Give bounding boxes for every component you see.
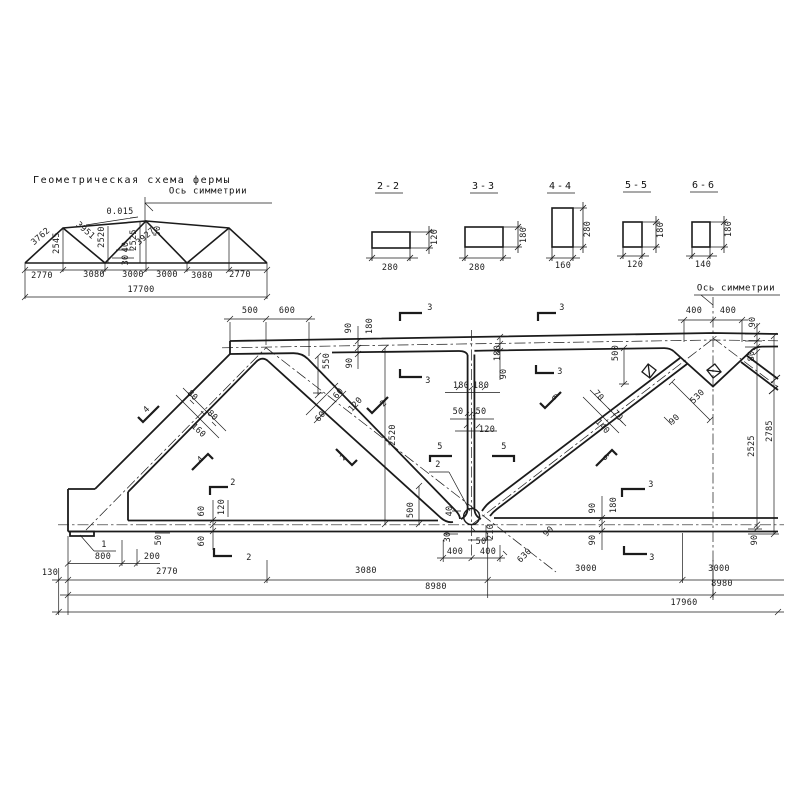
schema-panel-1: 2770	[31, 272, 53, 281]
dim-90-brc2: 90	[589, 535, 598, 546]
sec66-h: 180	[725, 221, 734, 237]
cut-5-b: 5	[501, 443, 506, 452]
drawing-sheet: Геометрическая схема фермы Ось симметрии…	[0, 0, 800, 800]
dim-60-bl2: 60	[198, 536, 207, 547]
dim-90-brc1: 90	[589, 503, 598, 514]
schema-title: Геометрическая схема фермы	[33, 176, 231, 186]
cut-3-t2: 3	[559, 304, 564, 313]
cut-2-b: 2	[246, 554, 251, 563]
dim-30-bc: 30	[444, 532, 453, 543]
sec66-w: 140	[695, 261, 711, 270]
schema-panel-2: 3080	[83, 271, 105, 280]
dim-120-v: 120	[479, 426, 495, 435]
dim-8980-l: 8980	[425, 583, 447, 592]
sec33-w: 280	[469, 264, 485, 273]
dim-400-l: 400	[686, 307, 702, 316]
dim-400-b2: 400	[480, 548, 496, 557]
schema-post-2: 2520	[98, 226, 107, 248]
dim-90-mid: 90	[500, 369, 509, 380]
dim-90-br: 90	[751, 535, 760, 546]
dim-130: 130	[42, 569, 58, 578]
schema-post-3: 2525	[130, 229, 139, 251]
sec55-h: 180	[657, 222, 666, 238]
dim-200: 200	[144, 553, 160, 562]
dim-400-b1: 400	[447, 548, 463, 557]
dim-180-v1: 180	[453, 382, 469, 391]
schema-panel-5: 3080	[191, 272, 213, 281]
dim-17960: 17960	[670, 599, 697, 608]
dim-3000-b2: 3000	[708, 565, 730, 574]
truss-outline	[68, 333, 778, 536]
dim-3000-b1: 3000	[575, 565, 597, 574]
detail-1: 1	[101, 541, 106, 550]
section-dims	[366, 192, 728, 261]
cut-3-t3: 3	[648, 481, 653, 490]
sec22-w: 280	[382, 264, 398, 273]
schema-offset-50: 50	[154, 226, 163, 237]
schema-post-1: 2545	[53, 232, 62, 254]
dim-90-j1b: 90	[346, 358, 355, 369]
schema-offset-30: 30	[122, 255, 131, 266]
sec44-h: 280	[584, 221, 593, 237]
section-title-4-4: 4-4	[549, 182, 573, 192]
schema-panel-3: 3000	[122, 271, 144, 280]
dim-180-mid: 180	[494, 345, 503, 361]
dim-120-bl: 120	[218, 499, 227, 515]
dim-40-bc: 40	[446, 506, 455, 517]
dim-3080-b: 3080	[355, 567, 377, 576]
sec44-w: 160	[555, 262, 571, 271]
cut-3-b1: 3	[425, 377, 430, 386]
gusset-pads	[642, 364, 721, 378]
cut-3-t1: 3	[427, 304, 432, 313]
section-title-3-3: 3-3	[472, 182, 496, 192]
dim-2785: 2785	[766, 420, 775, 442]
dim-2520: 2520	[389, 424, 398, 446]
schema-total: 17700	[127, 286, 154, 295]
dim-2770-b: 2770	[156, 568, 178, 577]
cut-5-a: 5	[437, 443, 442, 452]
main-axis-of-symmetry-label: Ось симметрии	[697, 285, 775, 294]
dim-90-tr: 90	[749, 317, 758, 328]
sec33-h: 180	[520, 227, 529, 243]
cut-3-b3: 3	[649, 554, 654, 563]
dim-550: 550	[323, 353, 332, 369]
dim-8980-r: 8980	[711, 580, 733, 589]
dim-180-brc: 180	[610, 497, 619, 513]
dim-500-top: 500	[242, 307, 258, 316]
dim-180-v2: 180	[473, 382, 489, 391]
dim-500-bc: 500	[407, 502, 416, 518]
dim-50-v1: 50	[453, 408, 464, 417]
member-axes	[58, 297, 784, 600]
dim-500-right: 500	[612, 345, 621, 361]
cut-3-b2: 3	[557, 368, 562, 377]
schema-panel-4: 3000	[156, 271, 178, 280]
section-title-2-2: 2-2	[377, 182, 401, 192]
dim-180-j1: 180	[366, 318, 375, 334]
dim-600-top: 600	[279, 307, 295, 316]
dim-80-tr: 80	[748, 351, 757, 362]
section-title-5-5: 5-5	[625, 181, 649, 191]
dim-2525: 2525	[748, 435, 757, 457]
schema-slope: 0.015	[106, 208, 133, 217]
sec55-w: 120	[627, 261, 643, 270]
dim-50-v2: 50	[476, 408, 487, 417]
dim-50-bl: 50	[155, 535, 164, 546]
cut-2-t: 2	[230, 479, 235, 488]
dim-210-bc: 210	[487, 524, 496, 540]
truss-drawing-canvas	[0, 0, 800, 800]
dim-90-j1a: 90	[345, 323, 354, 334]
dim-800: 800	[95, 553, 111, 562]
section-title-6-6: 6-6	[692, 181, 716, 191]
schema-axis-of-symmetry-label: Ось симметрии	[169, 188, 247, 197]
schema-panel-6: 2770	[229, 271, 251, 280]
sec22-h: 120	[431, 229, 440, 245]
dim-400-r: 400	[720, 307, 736, 316]
detail-2: 2	[435, 461, 440, 470]
dim-60-bl1: 60	[198, 506, 207, 517]
